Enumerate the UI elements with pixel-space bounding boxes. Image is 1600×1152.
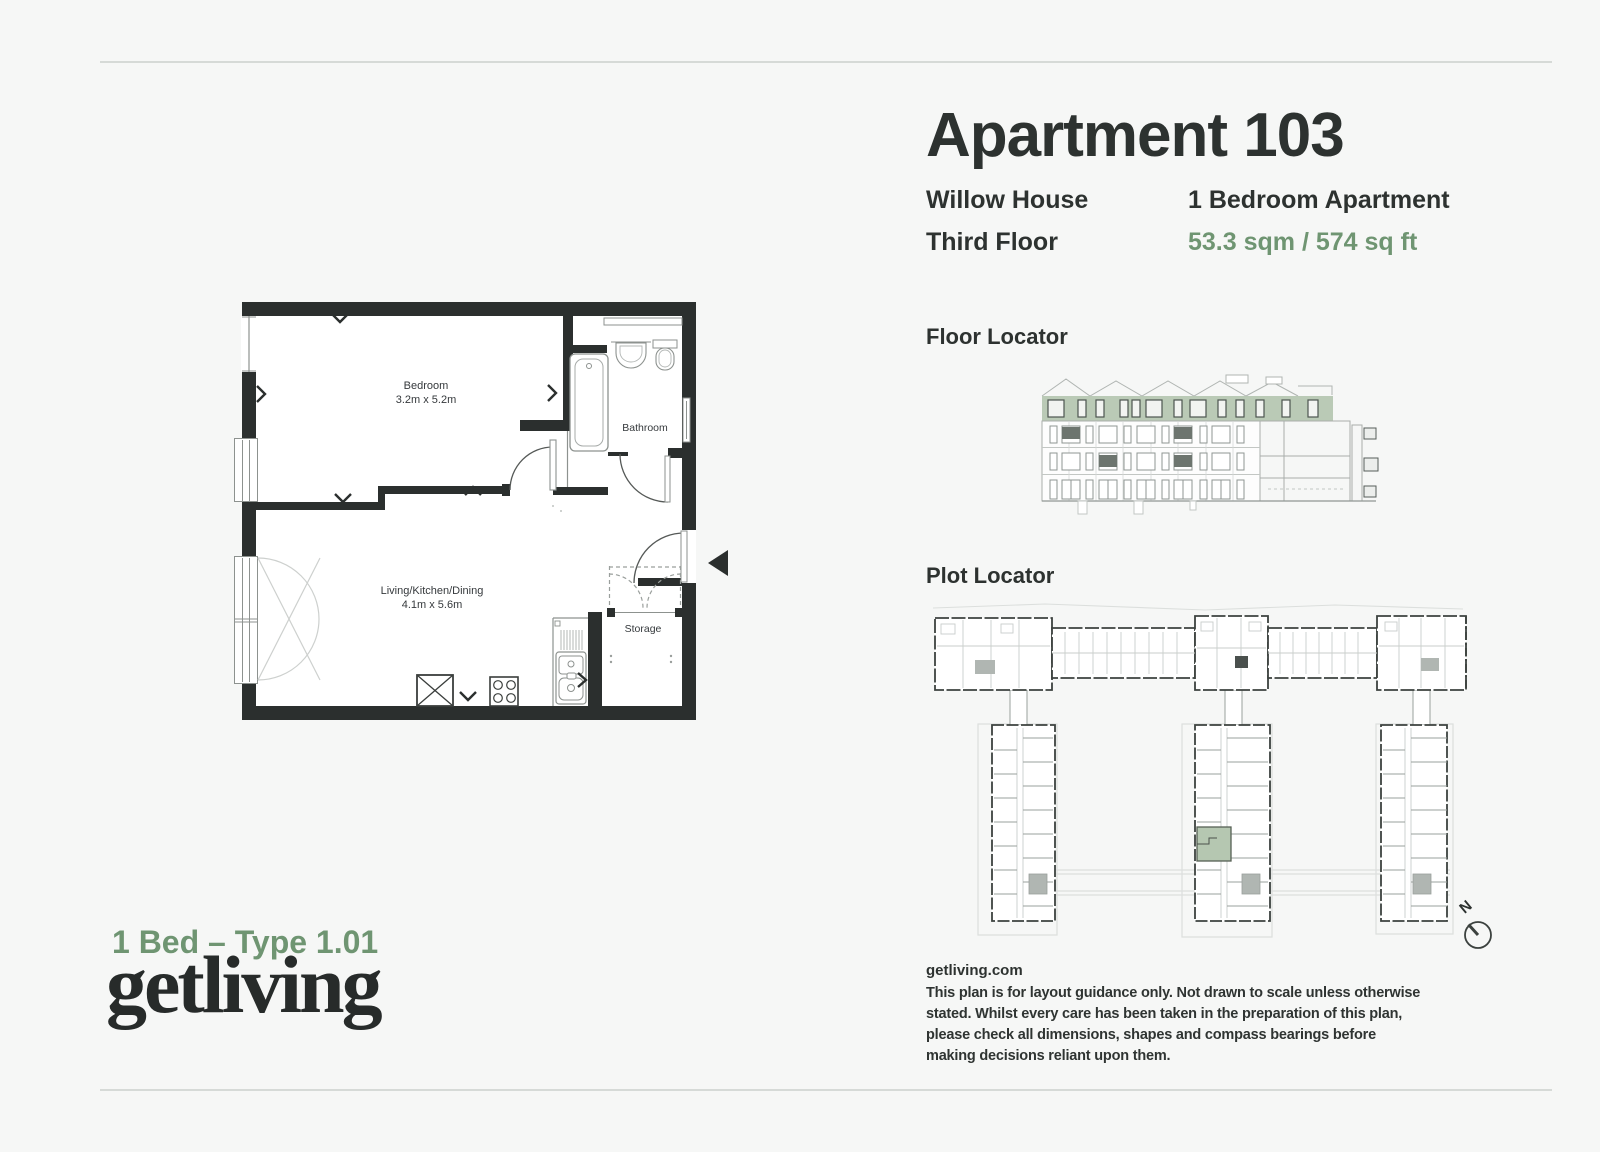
floorplan-sheet: Apartment 103 Willow House Third Floor 1… bbox=[0, 0, 1600, 1152]
disclaimer-line: stated. Whilst every care has been taken… bbox=[926, 1006, 1402, 1022]
entrance-arrow-icon bbox=[708, 550, 728, 576]
living-dims: 4.1m x 5.6m bbox=[402, 599, 463, 611]
roofline bbox=[1042, 375, 1332, 396]
floor-name: Third Floor bbox=[926, 228, 1058, 257]
outer-walls bbox=[249, 309, 689, 713]
lift-core bbox=[1235, 656, 1248, 668]
bottom-divider bbox=[100, 1089, 1552, 1091]
bedroom-window bbox=[235, 439, 258, 502]
site-boundary bbox=[933, 604, 1463, 610]
stair-core bbox=[1421, 658, 1439, 671]
plan-speck bbox=[552, 505, 554, 507]
link-corridors bbox=[1010, 690, 1430, 725]
building-facade bbox=[1042, 421, 1260, 501]
compass-needle bbox=[1469, 925, 1479, 936]
disclaimer-line: This plan is for layout guidance only. N… bbox=[926, 985, 1420, 1001]
bathroom-shelf bbox=[604, 318, 682, 325]
bedroom-label: Bedroom bbox=[404, 380, 449, 392]
stair-core bbox=[975, 660, 995, 674]
fridge-icon bbox=[417, 675, 453, 706]
apartment-area: 53.3 sqm / 574 sq ft bbox=[1188, 228, 1417, 257]
disclaimer-line: making decisions reliant upon them. bbox=[926, 1048, 1170, 1064]
disclaimer-line: please check all dimensions, shapes and … bbox=[926, 1027, 1376, 1043]
ground-line bbox=[1042, 501, 1376, 514]
top-divider bbox=[100, 61, 1552, 63]
apartment-floorplan: Bedroom 3.2m x 5.2m Living/Kitchen/Dinin… bbox=[230, 290, 730, 735]
getliving-logo: getliving bbox=[106, 938, 380, 1032]
toilet-icon bbox=[653, 340, 677, 370]
plot-locator-heading: Plot Locator bbox=[926, 563, 1054, 589]
bedroom-window-top bbox=[241, 316, 257, 372]
living-window bbox=[235, 557, 258, 684]
storage-label: Storage bbox=[625, 623, 662, 635]
annex-details bbox=[1364, 428, 1378, 497]
building-name: Willow House bbox=[926, 186, 1088, 215]
plan-speck bbox=[560, 510, 562, 512]
north-wing bbox=[935, 616, 1466, 690]
hob-icon bbox=[490, 677, 518, 706]
plot-locator-drawing bbox=[905, 598, 1490, 943]
north-label: N bbox=[1456, 897, 1475, 917]
compass: N bbox=[1448, 896, 1510, 956]
bathroom-label: Bathroom bbox=[622, 422, 668, 434]
highlighted-apartment bbox=[1197, 827, 1231, 861]
floor-locator-drawing bbox=[1020, 368, 1390, 528]
sink-icon bbox=[556, 652, 586, 704]
bathtub-icon bbox=[570, 354, 608, 451]
bedroom-dims: 3.2m x 5.2m bbox=[396, 394, 457, 406]
floor-locator-heading: Floor Locator bbox=[926, 324, 1068, 350]
annex-section bbox=[1260, 421, 1362, 501]
living-label: Living/Kitchen/Dining bbox=[381, 585, 484, 597]
towel-rail-icon bbox=[683, 398, 690, 442]
website-link: getliving.com bbox=[926, 962, 1023, 979]
apartment-type: 1 Bedroom Apartment bbox=[1188, 186, 1450, 215]
page-title: Apartment 103 bbox=[926, 100, 1344, 171]
